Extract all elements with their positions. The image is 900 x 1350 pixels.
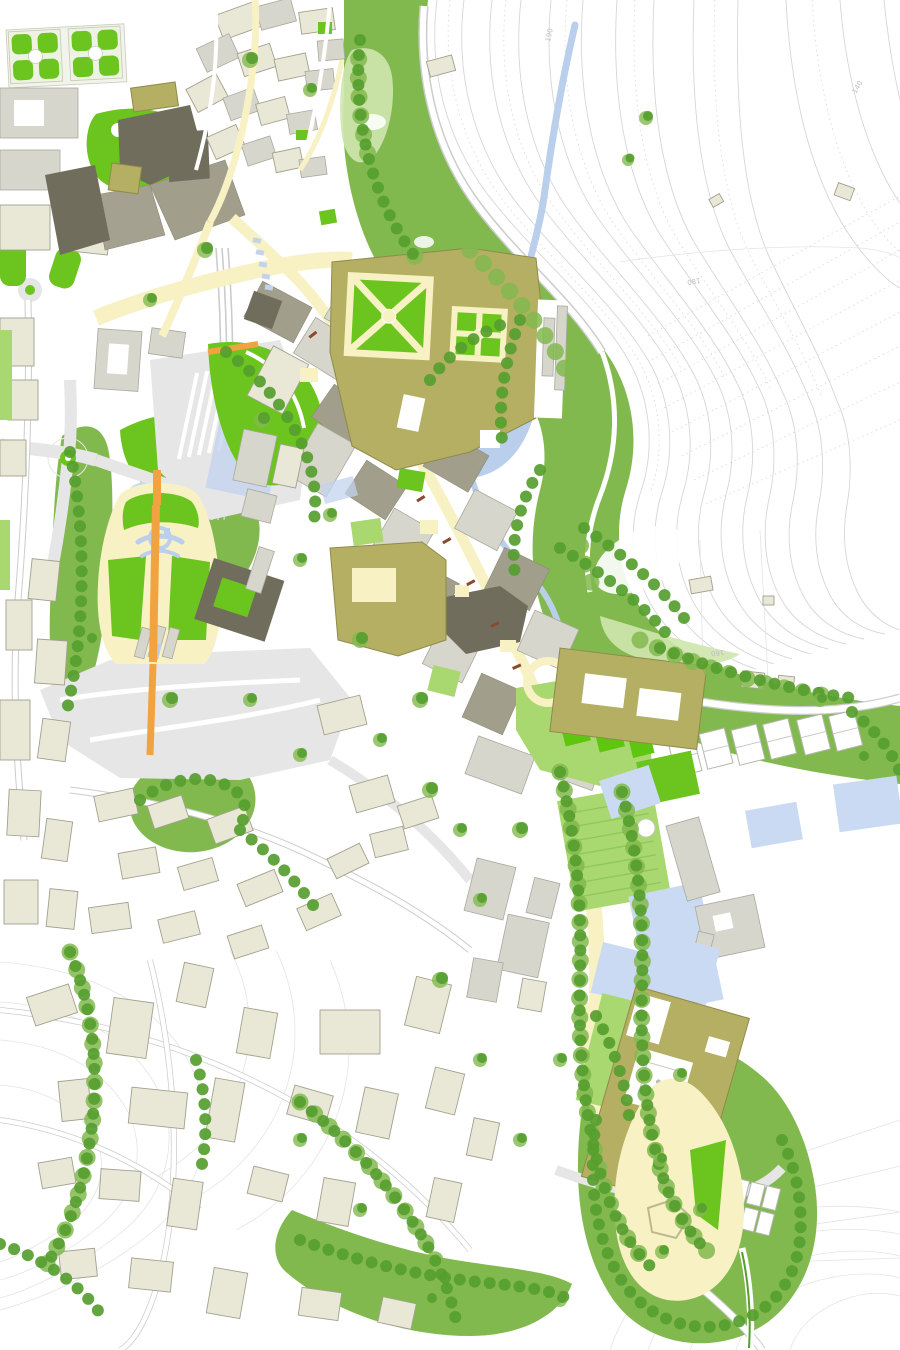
garden-square-diagonal [344, 272, 434, 360]
contour-label: 180 [686, 276, 701, 286]
contour-label: 190 [544, 28, 555, 43]
contour-label: 160 [710, 648, 724, 657]
contour-label: 140 [851, 79, 865, 95]
formal-garden-parterre [6, 24, 127, 88]
masterplan-map: 190 180 160 140 [0, 0, 900, 1350]
garden-square-cross [449, 306, 508, 363]
